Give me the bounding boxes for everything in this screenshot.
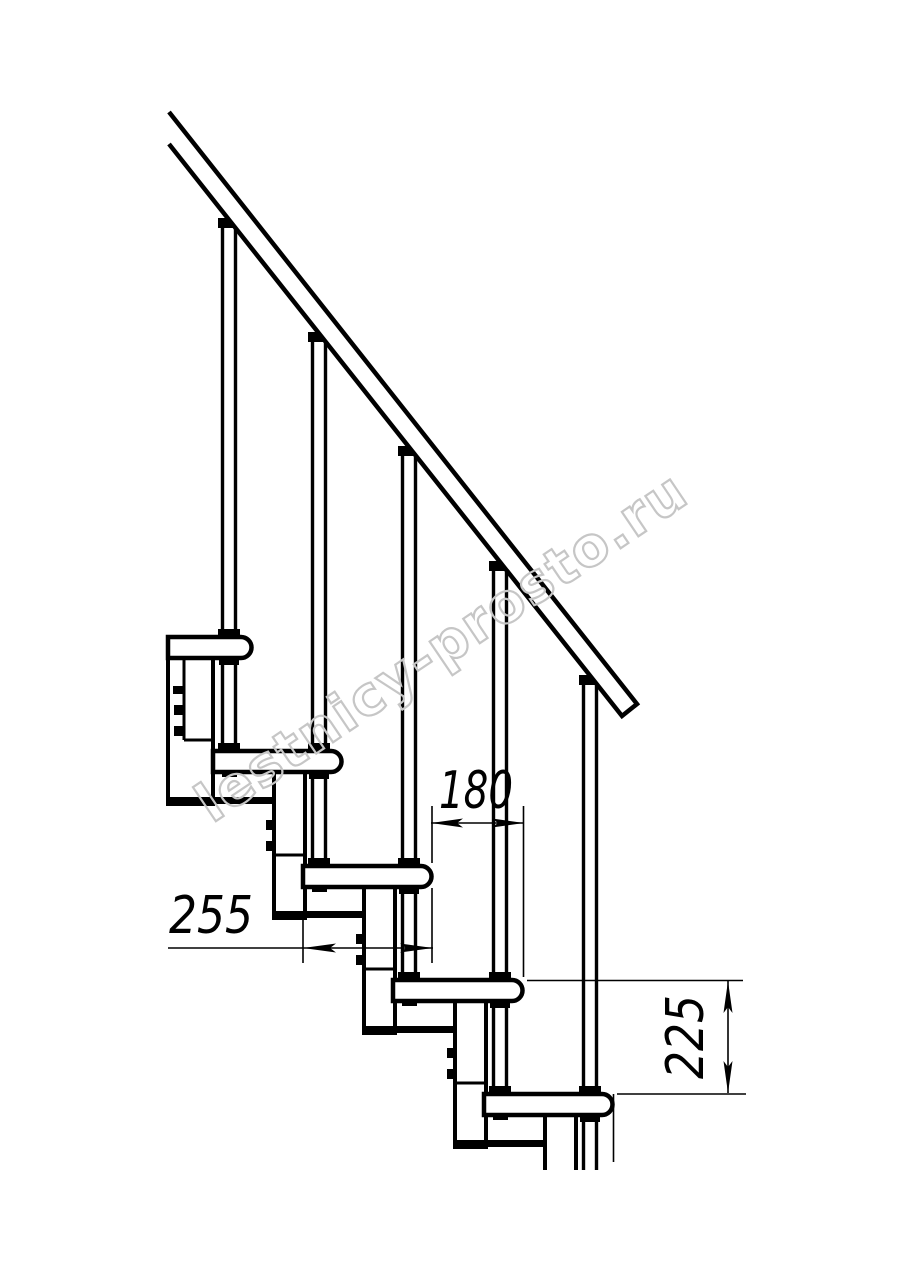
bolt	[447, 1069, 456, 1079]
bottom-plate	[274, 911, 364, 918]
bottom-plate	[364, 1026, 455, 1033]
baluster	[218, 218, 240, 751]
bolt	[174, 705, 183, 715]
tread	[168, 637, 252, 658]
dimension-value: 180	[439, 761, 513, 821]
tread-bolt	[493, 1113, 508, 1120]
dimension-225: 225	[527, 981, 746, 1163]
baluster	[308, 332, 330, 866]
tread	[303, 866, 432, 892]
dimension-180: 180	[431, 761, 524, 977]
bolt	[266, 841, 275, 851]
stringer-module-cut	[545, 1115, 576, 1170]
baluster	[398, 446, 420, 980]
bolt	[356, 955, 365, 965]
bottom-plate	[455, 1140, 545, 1147]
tread-bolt	[402, 999, 417, 1006]
stringer-module	[447, 1001, 545, 1147]
dimension-value: 225	[656, 995, 716, 1079]
tread	[393, 980, 523, 1006]
stringer-module	[266, 772, 364, 918]
tread-bolt	[312, 885, 327, 892]
drawing-page: 180 255 225 lestnicy-prosto.ru	[0, 0, 914, 1280]
bolt	[447, 1048, 456, 1058]
bolt	[266, 820, 275, 830]
stringer-module	[356, 887, 455, 1033]
staircase-drawing: 180 255 225 lestnicy-prosto.ru	[0, 0, 914, 1280]
bolt	[174, 726, 183, 736]
flange-tab	[173, 686, 183, 694]
dimension-value: 255	[169, 886, 253, 946]
bolt	[356, 934, 365, 944]
tread	[484, 1094, 613, 1120]
